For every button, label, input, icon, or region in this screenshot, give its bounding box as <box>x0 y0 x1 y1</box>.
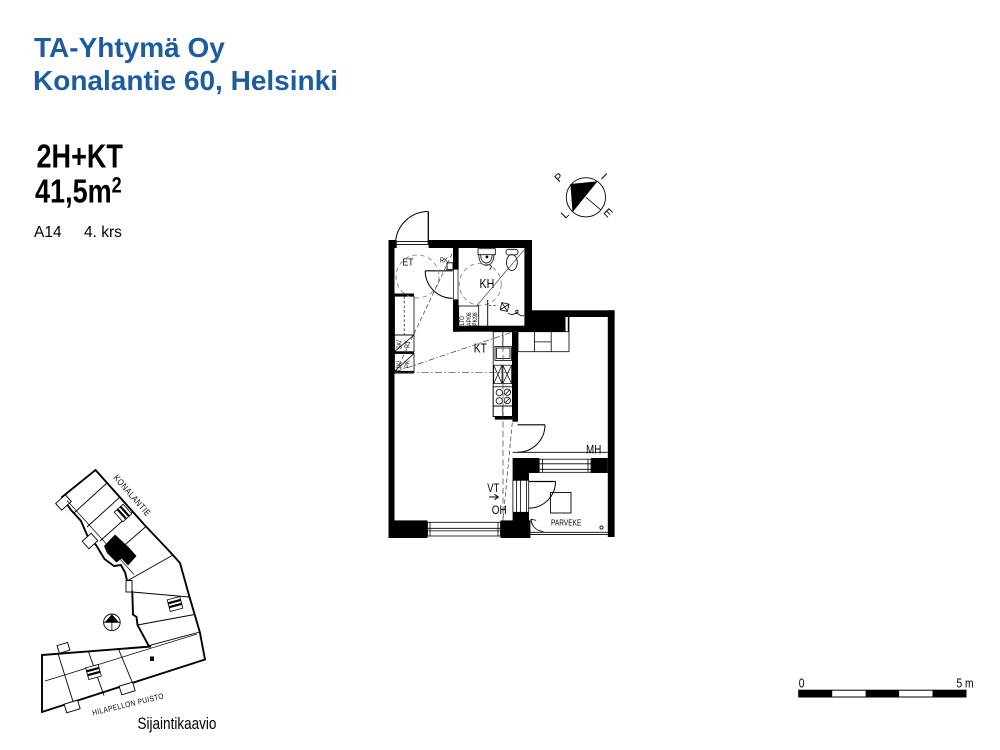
svg-text:2H+KT: 2H+KT <box>37 139 124 175</box>
svg-text:TA-Yhtymä Oy: TA-Yhtymä Oy <box>34 32 225 63</box>
svg-text:Konalantie 60, Helsinki: Konalantie 60, Helsinki <box>33 65 338 96</box>
svg-text:PY: PY <box>404 340 412 348</box>
svg-text:LTO: LTO <box>460 316 467 325</box>
svg-text:4. krs: 4. krs <box>84 224 122 241</box>
svg-text:PK/98: PK/98 <box>473 312 480 325</box>
svg-text:41,5m2: 41,5m2 <box>35 174 122 210</box>
svg-text:A14: A14 <box>34 224 62 241</box>
svg-text:5 m: 5 m <box>957 677 974 690</box>
svg-text:JK/: JK/ <box>396 361 404 369</box>
svg-text:VT: VT <box>487 482 500 495</box>
svg-text:Sijaintikaavio: Sijaintikaavio <box>138 715 217 734</box>
svg-text:MH: MH <box>586 443 601 456</box>
svg-text:PARVEKE: PARVEKE <box>551 518 581 528</box>
svg-text:ET: ET <box>403 257 414 269</box>
svg-text:SK/: SK/ <box>396 340 404 349</box>
svg-text:KH: KH <box>480 276 495 291</box>
svg-text:OH: OH <box>492 504 507 517</box>
svg-text:0: 0 <box>799 677 805 690</box>
